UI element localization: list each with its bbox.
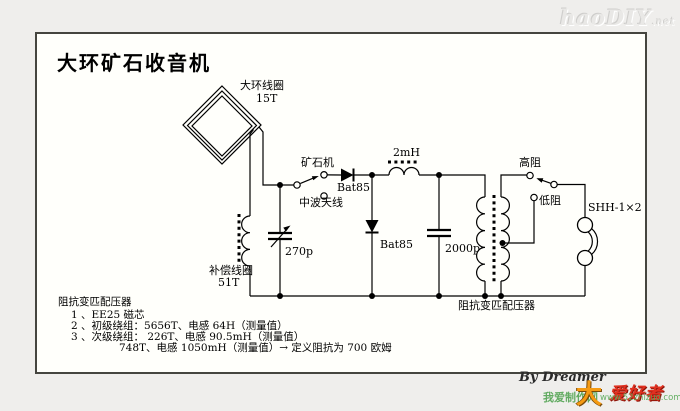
inductor-2mh [388,162,485,197]
variable-capacitor-270p [268,182,292,296]
compensation-coil [239,214,250,296]
site-logo-text: haoDIY [560,5,652,30]
label-cap: 2000p [445,243,480,255]
watermark-url: www.52zhizuo.com [600,393,680,403]
watermark-logo-icon: 大 [576,374,602,411]
capacitor-2000p [427,175,451,296]
note-item-4: 748T、电感 1050mH（测量值）→ 定义阻抗为 700 欧姆 [119,343,392,354]
label-diode1: Bat85 [337,182,370,194]
label-earphone: SHH-1×2 [588,202,642,214]
label-high-z: 高阻 [519,157,541,169]
loop-antenna [183,86,294,216]
label-diode2: Bat85 [380,239,413,251]
label-mw-antenna: 中波天线 [299,197,343,209]
label-loop-turns: 15T [256,93,277,105]
schematic-canvas: 大环矿石收音机 大环线圈 15T 矿石机 中波天线 Bat85 2mH Bat8… [35,32,647,374]
label-transformer: 阻抗变匹配压器 [458,300,535,312]
watermark: 我爱制作网 大 爱好者 www.52zhizuo.com [540,374,680,408]
site-logo: haoDIY.net [560,5,675,33]
earphone-symbol [578,218,598,297]
label-var-cap: 270p [285,246,313,258]
label-low-z: 低阻 [539,195,561,207]
diode-series [341,169,389,182]
label-crystal-set: 矿石机 [301,157,334,169]
notes-header: 阻抗变匹配压器 [58,297,132,308]
label-comp-turns: 51T [218,277,239,289]
site-logo-suffix: .net [652,17,676,28]
diagram-title: 大环矿石收音机 [57,47,211,76]
label-inductor: 2mH [393,147,420,159]
label-loop-coil: 大环线圈 [240,80,284,92]
